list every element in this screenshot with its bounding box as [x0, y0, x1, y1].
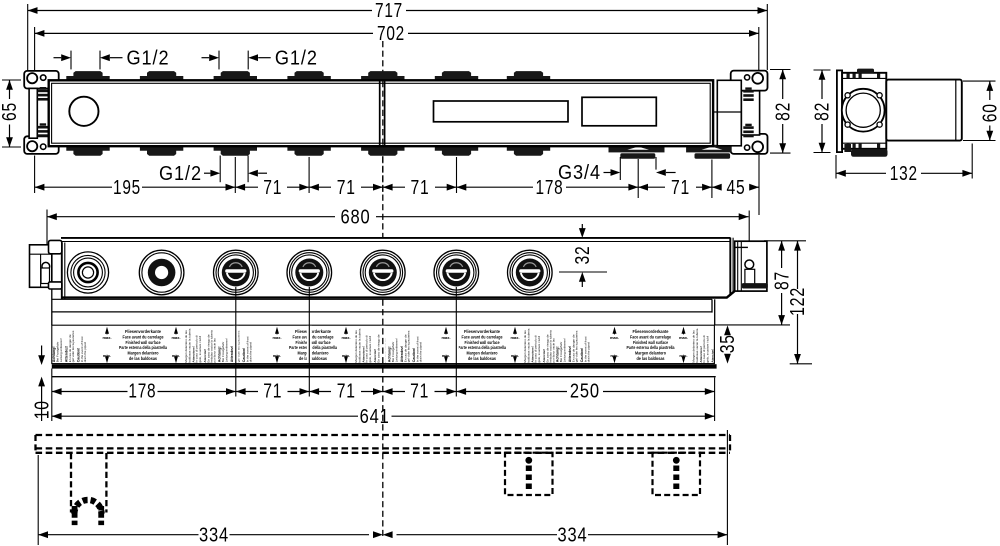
svg-text:71: 71	[263, 381, 282, 403]
svg-text:132: 132	[890, 163, 918, 185]
svg-text:10: 10	[31, 400, 53, 419]
svg-text:71: 71	[337, 177, 356, 199]
svg-text:122: 122	[787, 287, 809, 316]
svg-text:G1/2: G1/2	[127, 47, 170, 69]
svg-text:71: 71	[263, 177, 282, 199]
svg-text:641: 641	[360, 406, 390, 428]
svg-text:250: 250	[570, 381, 600, 403]
svg-text:71: 71	[671, 177, 690, 199]
svg-text:680: 680	[341, 206, 371, 228]
svg-text:G1/2: G1/2	[275, 47, 318, 69]
svg-text:717: 717	[375, 0, 403, 22]
svg-text:G3/4: G3/4	[558, 162, 601, 184]
svg-text:178: 178	[128, 381, 156, 403]
svg-text:32: 32	[572, 246, 594, 265]
svg-text:65: 65	[0, 102, 21, 121]
svg-text:71: 71	[411, 177, 430, 199]
svg-text:702: 702	[377, 23, 405, 45]
svg-text:35: 35	[717, 334, 739, 353]
svg-text:G1/2: G1/2	[159, 163, 202, 185]
svg-text:45: 45	[727, 177, 746, 199]
svg-text:60: 60	[980, 103, 1000, 122]
svg-text:334: 334	[199, 524, 229, 546]
svg-text:334: 334	[558, 524, 588, 546]
svg-text:71: 71	[410, 381, 429, 403]
svg-text:195: 195	[113, 177, 141, 199]
svg-text:71: 71	[337, 381, 356, 403]
svg-text:82: 82	[772, 102, 794, 121]
svg-text:82: 82	[812, 102, 834, 121]
svg-text:178: 178	[536, 177, 564, 199]
